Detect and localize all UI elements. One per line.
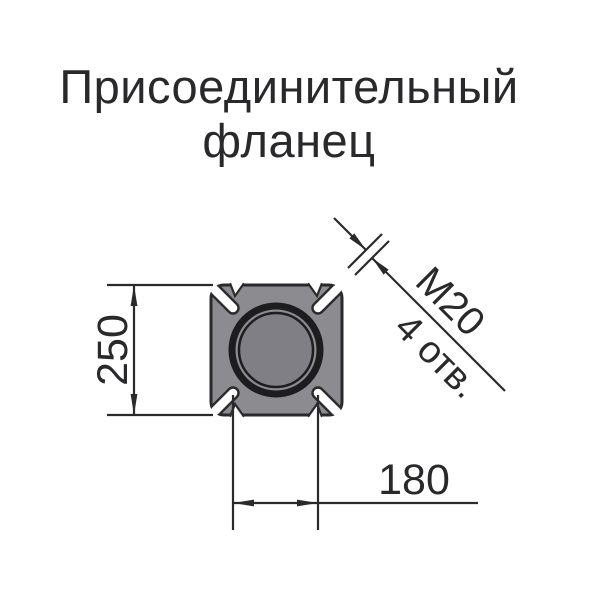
dim-250-label: 250	[89, 314, 137, 386]
dim-180-arrow-left	[233, 500, 254, 507]
page-title-line2: фланец	[202, 114, 375, 167]
dim-flange-size: 250	[89, 285, 213, 415]
callout-arrowhead-upper	[349, 233, 366, 250]
page-title-line1: Присоединительный	[59, 60, 518, 113]
bore-circle-inner	[239, 313, 313, 387]
thread-callout: М20 4 отв.	[334, 218, 505, 407]
drawing-page: Присоединительный фланец 250	[0, 0, 600, 600]
dim-180-label: 180	[378, 456, 450, 504]
flange-drawing: Присоединительный фланец 250	[0, 0, 600, 600]
dim-250-arrow-down	[131, 394, 138, 415]
dim-250-arrow-up	[131, 285, 138, 306]
dim-180-arrow-right	[297, 500, 318, 507]
